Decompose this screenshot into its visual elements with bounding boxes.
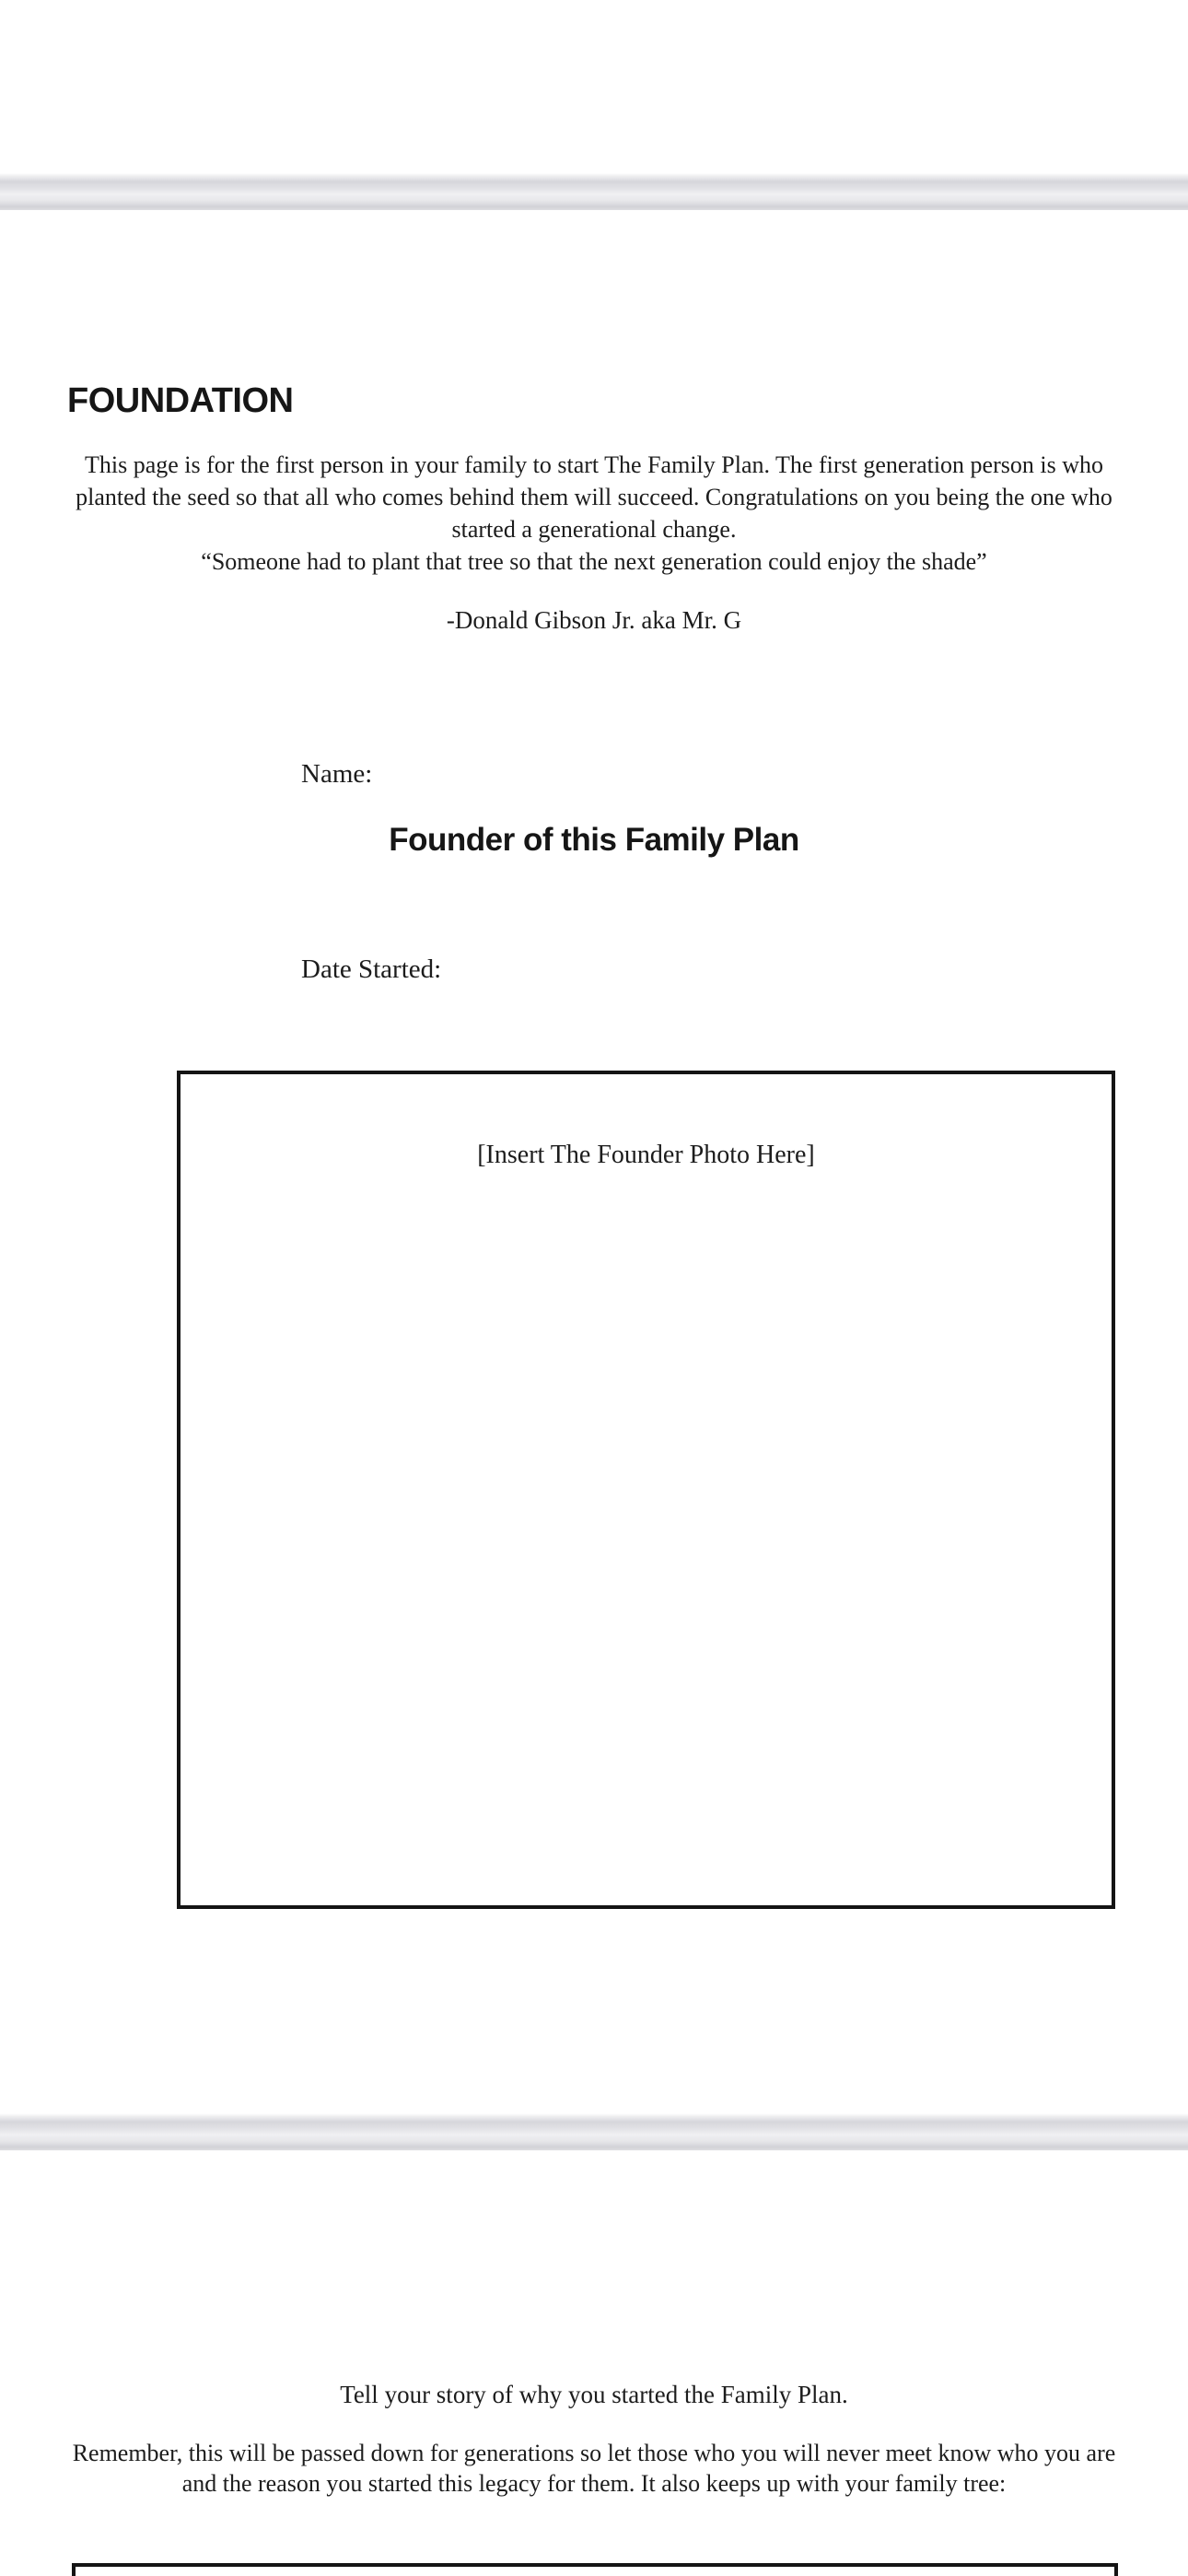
foundation-quote: “Someone had to plant that tree so that … (55, 545, 1133, 578)
page-previous-bottom[interactable] (0, 0, 1188, 177)
page-break-gap-1 (0, 177, 1188, 210)
page-story[interactable]: Tell your story of why you started the F… (0, 2150, 1188, 2576)
foundation-heading: FOUNDATION (67, 381, 294, 421)
founder-photo-placeholder-label: [Insert The Founder Photo Here] (181, 1074, 1112, 1170)
story-text-box[interactable] (72, 2563, 1118, 2576)
story-prompt: Tell your story of why you started the F… (0, 2381, 1188, 2409)
document-viewport[interactable]: FOUNDATION This page is for the first pe… (0, 0, 1188, 2576)
founder-photo-placeholder-box[interactable]: [Insert The Founder Photo Here] (177, 1071, 1115, 1909)
page-break-gap-2 (0, 2117, 1188, 2150)
name-field-label: Name: (301, 759, 372, 790)
founder-title: Founder of this Family Plan (0, 822, 1188, 859)
foundation-intro-paragraph: This page is for the first person in you… (55, 449, 1133, 545)
date-started-field-label: Date Started: (301, 954, 441, 985)
quote-attribution: -Donald Gibson Jr. aka Mr. G (0, 606, 1188, 635)
page-foundation[interactable]: FOUNDATION This page is for the first pe… (0, 210, 1188, 2117)
foundation-intro-block: This page is for the first person in you… (55, 449, 1133, 578)
story-instructions: Remember, this will be passed down for g… (55, 2438, 1133, 2499)
